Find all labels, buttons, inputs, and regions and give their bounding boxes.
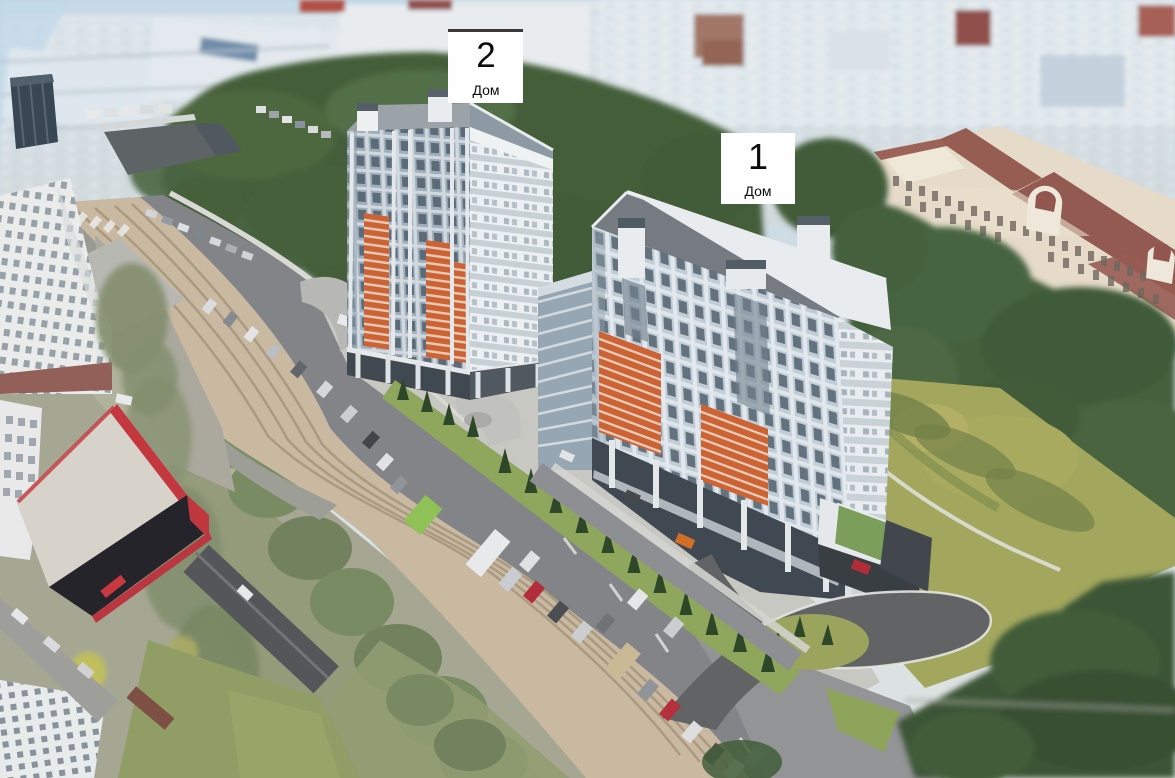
svg-text:1: 1 <box>748 136 768 177</box>
svg-text:2: 2 <box>476 36 495 75</box>
svg-text:Дом: Дом <box>744 183 771 199</box>
svg-text:Дом: Дом <box>472 82 499 98</box>
